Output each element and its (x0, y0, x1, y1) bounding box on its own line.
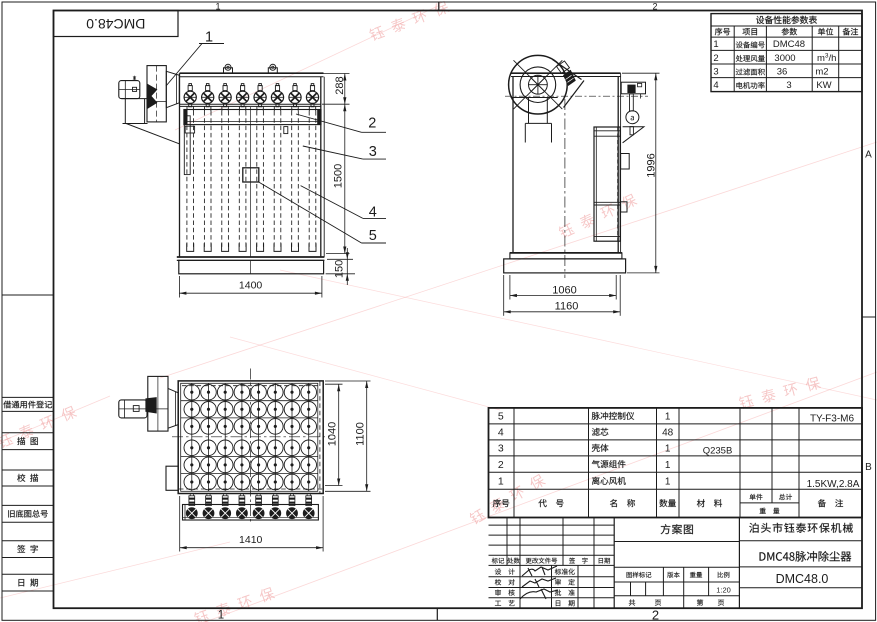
svg-text:4: 4 (498, 427, 504, 439)
svg-text:1996: 1996 (646, 153, 658, 177)
svg-text:3: 3 (498, 443, 504, 455)
svg-text:1.5KW,2.8A: 1.5KW,2.8A (807, 479, 860, 490)
svg-text:2: 2 (498, 459, 504, 471)
svg-text:1100: 1100 (355, 422, 367, 446)
svg-text:1410: 1410 (239, 534, 263, 546)
svg-text:1: 1 (498, 476, 504, 488)
svg-text:3000: 3000 (774, 53, 795, 64)
svg-text:DMC48: DMC48 (773, 39, 805, 50)
svg-text:3: 3 (786, 80, 791, 91)
svg-text:1: 1 (665, 460, 671, 471)
svg-text:2: 2 (368, 115, 376, 131)
svg-text:4: 4 (713, 80, 718, 91)
svg-text:1160: 1160 (555, 301, 579, 313)
svg-text:1040: 1040 (327, 422, 339, 446)
svg-text:1: 1 (215, 1, 220, 11)
svg-text:2: 2 (652, 1, 657, 11)
svg-text:TY-F3-M6: TY-F3-M6 (810, 413, 855, 424)
svg-text:48: 48 (662, 428, 674, 439)
svg-text:DMC48.0: DMC48.0 (776, 572, 829, 586)
svg-text:1:20: 1:20 (716, 585, 731, 594)
svg-text:1: 1 (713, 39, 718, 50)
svg-text:5: 5 (498, 411, 504, 423)
svg-text:3: 3 (713, 66, 718, 77)
svg-text:1: 1 (665, 444, 671, 455)
svg-text:2: 2 (713, 53, 718, 64)
svg-text:1: 1 (218, 610, 224, 622)
svg-text:4: 4 (369, 205, 377, 221)
svg-text:1: 1 (665, 477, 671, 488)
svg-text:KW: KW (816, 80, 831, 91)
svg-text:288: 288 (334, 76, 346, 94)
svg-text:Q235B: Q235B (703, 445, 733, 456)
svg-text:5: 5 (369, 228, 377, 244)
svg-text:DMC48.0: DMC48.0 (86, 16, 145, 32)
svg-text:150: 150 (334, 260, 346, 278)
svg-text:3: 3 (369, 144, 377, 160)
svg-text:1400: 1400 (239, 279, 263, 291)
svg-text:B: B (865, 462, 872, 473)
svg-text:1: 1 (665, 412, 671, 423)
svg-text:36: 36 (777, 66, 788, 77)
svg-text:1500: 1500 (333, 164, 345, 188)
svg-text:A: A (865, 150, 872, 161)
svg-text:m2: m2 (815, 66, 828, 77)
svg-text:1: 1 (205, 29, 213, 45)
svg-text:2: 2 (652, 608, 659, 622)
svg-text:1060: 1060 (552, 284, 576, 296)
